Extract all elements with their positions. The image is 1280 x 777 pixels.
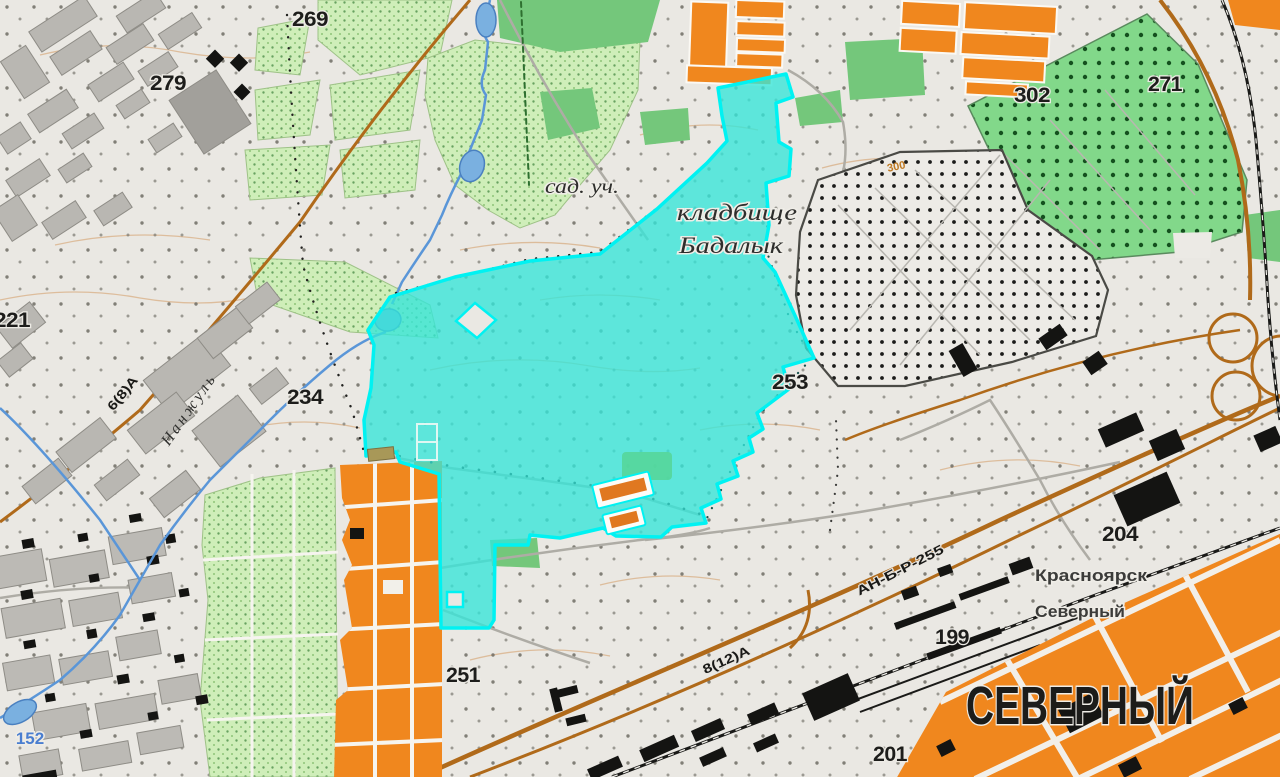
elevation-label: 201: [873, 743, 908, 766]
water-level-label: 152: [16, 729, 44, 748]
elevation-label: 204: [1102, 523, 1139, 546]
highlight-hole-square: [447, 592, 463, 607]
elevation-label: 234: [287, 386, 324, 409]
elevation-label: 199: [935, 626, 969, 649]
elevation-label: 251: [446, 664, 481, 687]
garden-area-label: сад. уч.: [545, 176, 619, 198]
tan-building: [367, 447, 394, 462]
elevation-label: 302: [1014, 84, 1050, 107]
map-viewport[interactable]: 269 279 221 234 253 302 271 204 199 201 …: [0, 0, 1280, 777]
cemetery-label-line1: кладбище: [677, 200, 797, 225]
elevation-label: 253: [772, 371, 808, 394]
elevation-label: 271: [1148, 73, 1183, 96]
elevation-label: 269: [292, 8, 328, 31]
station-label-line2: Северный: [1035, 602, 1125, 621]
elevation-label: 279: [150, 72, 186, 95]
cemetery-label-line2: Бадалык: [678, 233, 784, 258]
elevation-label: 221: [0, 309, 31, 332]
station-label-line1: Красноярск: [1035, 566, 1148, 585]
district-label: СЕВЕРНЫЙ: [966, 675, 1194, 736]
topo-map[interactable]: 269 279 221 234 253 302 271 204 199 201 …: [0, 0, 1280, 777]
orange-cluster-top: [686, 0, 786, 86]
